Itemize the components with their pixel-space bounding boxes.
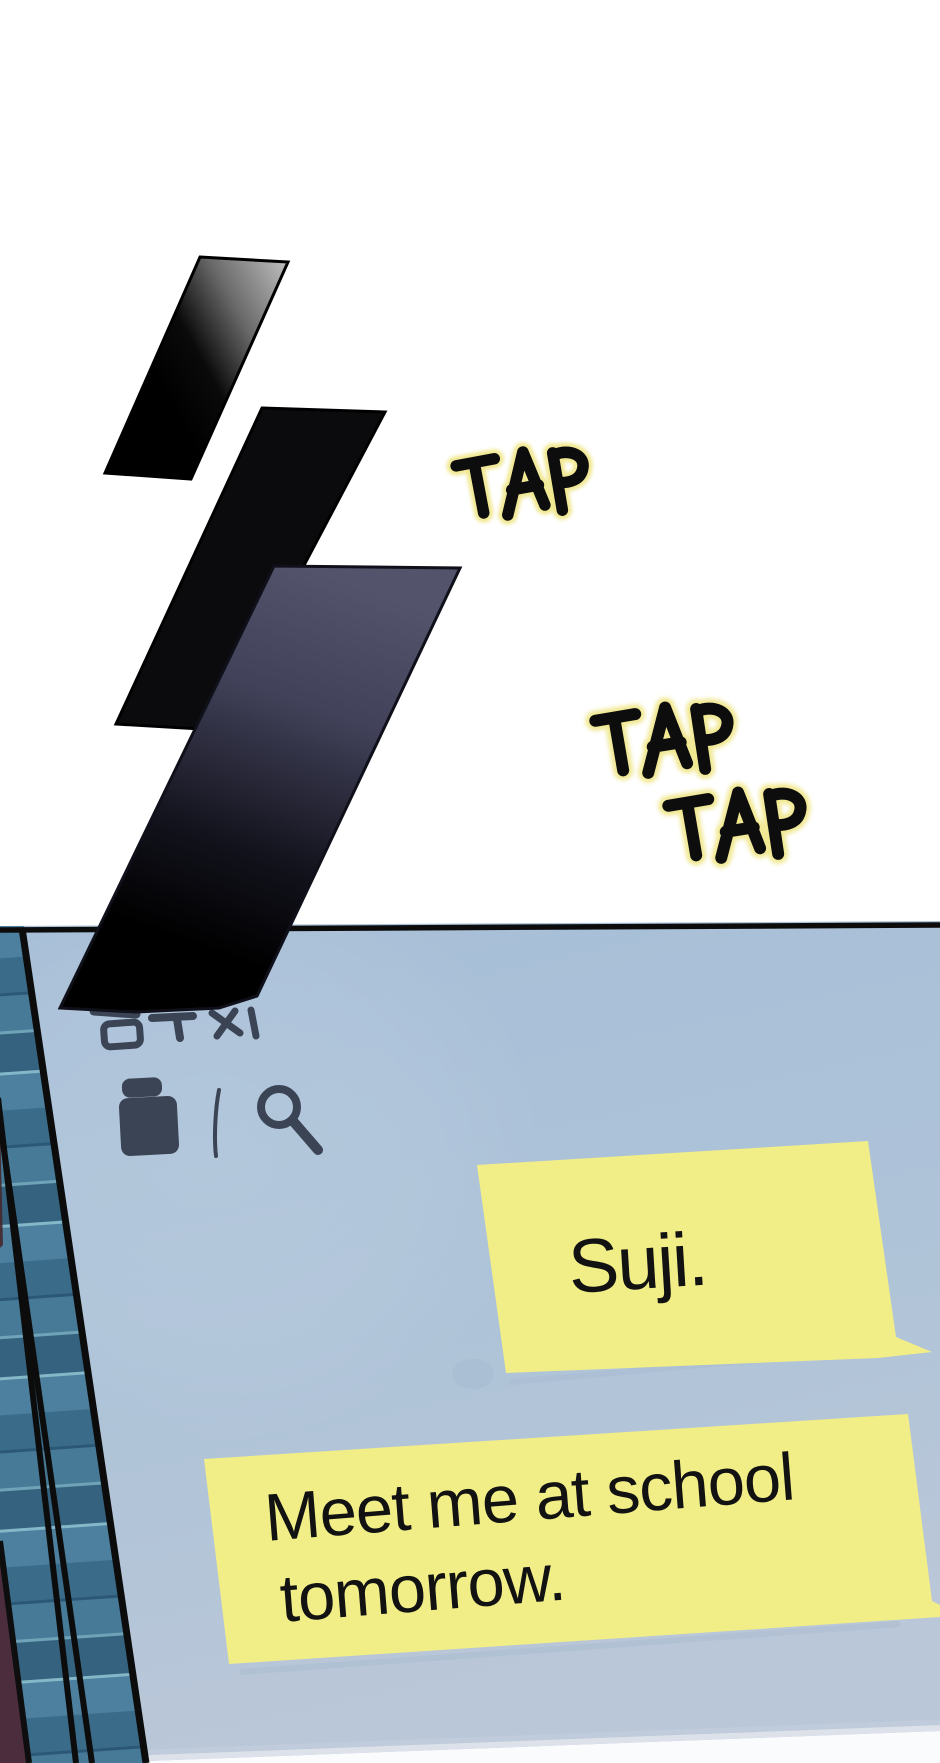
svg-text:Suji.: Suji.: [566, 1217, 709, 1310]
